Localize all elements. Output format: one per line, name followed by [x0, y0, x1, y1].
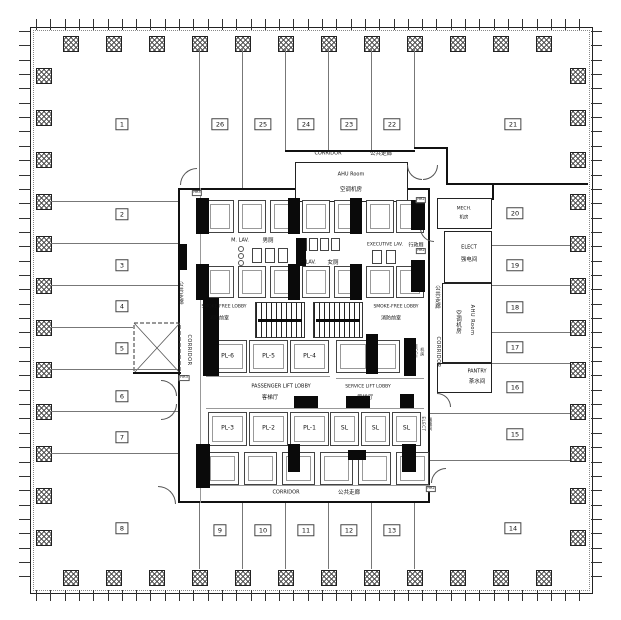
partition-line	[242, 150, 243, 188]
partition-line	[430, 413, 570, 414]
mullion-tick	[265, 590, 266, 601]
mullion-tick	[19, 361, 30, 362]
mullion-tick	[19, 232, 30, 233]
mullion-tick	[451, 19, 452, 30]
mullion-tick	[19, 548, 30, 549]
mullion-tick	[591, 232, 602, 233]
lav-stall	[320, 238, 329, 251]
shear-wall	[348, 450, 366, 460]
mullion-tick	[236, 590, 237, 601]
mullion-tick	[19, 519, 30, 520]
mullion-tick	[591, 289, 602, 290]
lift-cell: PL-5	[249, 340, 288, 373]
column	[450, 36, 466, 52]
mullion-tick	[494, 19, 495, 30]
mullion-tick	[591, 562, 602, 563]
lav-stall	[265, 248, 275, 263]
room-number-tag: 5	[115, 342, 128, 354]
pantry-label: PANTRY	[467, 369, 486, 375]
cell-inner	[340, 344, 366, 369]
ahu-right-label: AHU Room	[468, 305, 474, 336]
shaft-cell	[366, 266, 394, 298]
shear-wall	[402, 444, 416, 472]
column	[364, 36, 380, 52]
smoke-free-lobby-right-label-zh: 消防前室	[381, 316, 401, 322]
corridor-right-vertical-label: CORRIDOR	[434, 336, 440, 367]
mullion-tick	[251, 590, 252, 601]
mullion-tick	[19, 390, 30, 391]
lift-cell: PL-4	[290, 340, 329, 373]
mullion-tick	[19, 203, 30, 204]
cell-inner	[210, 270, 230, 294]
mullion-tick	[19, 74, 30, 75]
lift-label: PL-5	[250, 353, 287, 359]
shear-wall	[288, 264, 300, 300]
shaft-cell	[302, 266, 330, 298]
mullion-tick	[19, 562, 30, 563]
core-guide-line	[206, 408, 330, 409]
column	[536, 36, 552, 52]
column	[570, 404, 586, 420]
mullion-tick	[591, 390, 602, 391]
mullion-tick	[265, 19, 266, 30]
mens-lav-label-zh: 男厕	[262, 238, 273, 244]
urinal-fixture	[238, 260, 244, 266]
mullion-tick	[537, 19, 538, 30]
mullion-tick	[508, 19, 509, 30]
mullion-tick	[351, 590, 352, 601]
hose-reel-tag-4: HR3	[192, 190, 202, 196]
mullion-tick	[222, 19, 223, 30]
hose-reel-tag-1: HR2	[416, 197, 426, 203]
mullion-tick	[308, 19, 309, 30]
shear-wall	[288, 444, 300, 472]
mullion-tick	[591, 74, 602, 75]
shear-wall	[366, 334, 378, 374]
mullion-tick	[591, 375, 602, 376]
mullion-tick	[591, 160, 602, 161]
cell-inner	[242, 270, 262, 294]
mullion-tick	[465, 19, 466, 30]
mullion-tick	[591, 189, 602, 190]
cell-inner	[324, 456, 349, 481]
mullion-tick	[591, 146, 602, 147]
lav-stall	[386, 250, 396, 264]
urinal-fixture	[238, 253, 244, 259]
lav-stall	[372, 250, 382, 264]
mech-core-vertical-label: MECH.	[413, 344, 417, 359]
mullion-tick	[36, 590, 37, 601]
column	[106, 36, 122, 52]
mullion-tick	[379, 590, 380, 601]
stair-flight-left	[255, 302, 305, 338]
passenger-lift-lobby-label: PASSENGER LIFT LOBBY	[251, 384, 310, 390]
shaft-cell	[244, 452, 277, 485]
passenger-lift-lobby-label-zh: 客梯厅	[262, 395, 279, 401]
mullion-tick	[579, 19, 580, 30]
mullion-tick	[408, 590, 409, 601]
room-number-tag: 7	[115, 431, 128, 443]
ahu-top-label-zh: 空调机房	[340, 187, 362, 193]
partition-line	[371, 47, 372, 150]
mullion-tick	[494, 590, 495, 601]
shaft-cell	[238, 266, 266, 298]
mullion-tick	[451, 590, 452, 601]
mullion-tick	[591, 447, 602, 448]
shaft-cell	[238, 200, 266, 233]
room-number-tag: 21	[504, 118, 521, 130]
lift-label: PL-2	[250, 426, 287, 432]
cell-inner	[210, 456, 235, 481]
lav-stall	[309, 238, 318, 251]
column	[36, 446, 52, 462]
lift-cell: SL	[361, 412, 390, 446]
mullion-tick	[591, 261, 602, 262]
mullion-tick	[179, 19, 180, 30]
mullion-tick	[322, 19, 323, 30]
mullion-tick	[351, 19, 352, 30]
mullion-tick	[522, 590, 523, 601]
mullion-tick	[19, 490, 30, 491]
column	[321, 570, 337, 586]
core-guide-line	[330, 408, 424, 409]
shear-wall	[288, 198, 300, 234]
partition-line	[414, 503, 415, 569]
mullion-tick	[19, 218, 30, 219]
mullion-tick	[591, 45, 602, 46]
column	[278, 36, 294, 52]
mullion-tick	[19, 31, 30, 32]
mullion-tick	[19, 533, 30, 534]
room-number-tag: 12	[340, 524, 357, 536]
room-number-tag: 17	[506, 341, 523, 353]
mullion-tick	[193, 19, 194, 30]
lift-label: SL	[362, 426, 389, 432]
room-number-tag: 23	[340, 118, 357, 130]
demising-wall	[285, 150, 415, 152]
demising-wall	[446, 183, 588, 185]
demising-wall	[133, 372, 181, 374]
mullion-tick	[465, 590, 466, 601]
mullion-tick	[365, 19, 366, 30]
mullion-tick	[279, 19, 280, 30]
mullion-tick	[308, 590, 309, 601]
shear-wall	[203, 338, 219, 376]
mullion-tick	[136, 19, 137, 30]
mullion-tick	[19, 103, 30, 104]
mech-core-vertical-label-zh: 机房	[420, 348, 424, 357]
partition-line	[492, 363, 570, 364]
smoke-free-lobby-left-label: SMOKE-FREE LOBBY	[201, 306, 246, 311]
mullion-tick	[591, 117, 602, 118]
mullion-tick	[436, 19, 437, 30]
lift-label: PL-1	[291, 426, 328, 432]
mech-annex-label: MECH.	[457, 208, 472, 213]
mullion-tick	[591, 548, 602, 549]
column	[570, 236, 586, 252]
column	[36, 404, 52, 420]
column	[235, 570, 251, 586]
demising-wall	[414, 147, 448, 149]
mullion-tick	[19, 275, 30, 276]
column	[570, 530, 586, 546]
room-number-tag: 11	[297, 524, 314, 536]
partition-line	[47, 453, 178, 454]
column	[493, 36, 509, 52]
partition-line	[492, 285, 570, 286]
mullion-tick	[537, 590, 538, 601]
column	[407, 570, 423, 586]
cell-inner	[248, 456, 273, 481]
mullion-tick	[251, 19, 252, 30]
partition-line	[285, 503, 286, 569]
mullion-tick	[19, 576, 30, 577]
shear-wall	[178, 244, 187, 270]
column	[36, 530, 52, 546]
column	[36, 110, 52, 126]
mullion-tick	[479, 590, 480, 601]
mullion-tick	[19, 131, 30, 132]
mullion-tick	[208, 19, 209, 30]
column	[278, 570, 294, 586]
mullion-tick	[19, 433, 30, 434]
mullion-tick	[93, 19, 94, 30]
shear-wall	[350, 198, 362, 234]
partition-line	[47, 327, 133, 328]
partition-line	[328, 503, 329, 569]
mullion-tick	[193, 590, 194, 601]
cell-inner	[370, 204, 390, 229]
pantry-label-zh: 茶水间	[469, 379, 486, 385]
shear-wall	[196, 444, 210, 488]
mullion-tick	[591, 131, 602, 132]
hose-reel-tag-3: HR2	[426, 486, 436, 492]
mullion-tick	[591, 88, 602, 89]
mullion-tick	[591, 203, 602, 204]
column	[235, 36, 251, 52]
mullion-tick	[36, 19, 37, 30]
mullion-tick	[108, 590, 109, 601]
column	[106, 570, 122, 586]
mullion-tick	[50, 19, 51, 30]
core-guide-line	[336, 378, 424, 379]
smoke-free-lobby-right-label: SMOKE-FREE LOBBY	[373, 306, 418, 311]
lift-label: PL-4	[291, 353, 328, 359]
corridor-bottom-label-zh: 公共走廊	[338, 490, 360, 496]
column	[493, 570, 509, 586]
column	[570, 152, 586, 168]
column	[321, 36, 337, 52]
partition-line	[242, 47, 243, 150]
corridor-bottom-label: CORRIDOR	[272, 490, 299, 496]
mullion-tick	[422, 590, 423, 601]
core-guide-line	[196, 485, 430, 486]
partition-line	[47, 243, 178, 244]
room-number-tag: 25	[254, 118, 271, 130]
partition-line	[414, 47, 415, 148]
lift-label: SL	[331, 426, 358, 432]
shaft-cell	[206, 200, 234, 233]
shear-wall	[196, 198, 209, 234]
partition-line	[430, 460, 570, 461]
executive-lav-label: EXECUTIVE LAV.	[367, 244, 403, 249]
mullion-tick	[293, 590, 294, 601]
lift-cell: PL-3	[208, 412, 247, 446]
lift-cell: SL	[392, 412, 421, 446]
mullion-tick	[591, 347, 602, 348]
shaft-cell	[206, 452, 239, 485]
column	[149, 570, 165, 586]
column	[63, 36, 79, 52]
mullion-tick	[122, 590, 123, 601]
mullion-tick	[108, 19, 109, 30]
partition-line	[492, 332, 570, 333]
mullion-tick	[591, 533, 602, 534]
mullion-tick	[591, 60, 602, 61]
mullion-tick	[394, 19, 395, 30]
mullion-tick	[19, 318, 30, 319]
mullion-tick	[222, 590, 223, 601]
corridor-right-vertical-label-zh: 公共走廊	[434, 285, 440, 309]
cell-inner	[242, 204, 262, 229]
lift-cell: SL	[330, 412, 359, 446]
womens-lav-label: F. LAV.	[300, 260, 316, 266]
mullion-tick	[522, 19, 523, 30]
mullion-tick	[591, 433, 602, 434]
demising-wall	[492, 184, 494, 200]
mullion-tick	[19, 246, 30, 247]
mullion-tick	[150, 590, 151, 601]
mullion-tick	[591, 462, 602, 463]
mullion-tick	[19, 88, 30, 89]
mullion-tick	[591, 404, 602, 405]
partition-line	[47, 369, 178, 370]
shear-wall	[400, 394, 414, 408]
column	[36, 194, 52, 210]
shaft-cell	[366, 200, 394, 233]
column	[570, 68, 586, 84]
room-number-tag: 4	[115, 300, 128, 312]
mullion-tick	[591, 332, 602, 333]
column	[364, 570, 380, 586]
mullion-tick	[579, 590, 580, 601]
service-lift-lobby-label-zh: 货梯厅	[357, 395, 374, 401]
hose-reel-tag-2: HR2	[416, 248, 426, 254]
column	[570, 194, 586, 210]
mullion-tick	[19, 60, 30, 61]
mullion-tick	[591, 361, 602, 362]
cell-inner	[376, 344, 396, 369]
shaft-cell	[206, 266, 234, 298]
mullion-tick	[336, 19, 337, 30]
mullion-tick	[591, 275, 602, 276]
partition-line	[242, 503, 243, 569]
mullion-tick	[179, 590, 180, 601]
mullion-tick	[293, 19, 294, 30]
ahu-room-right	[442, 283, 492, 363]
column	[570, 320, 586, 336]
mullion-tick	[165, 19, 166, 30]
column	[570, 278, 586, 294]
mullion-tick	[436, 590, 437, 601]
mullion-tick	[208, 590, 209, 601]
column	[63, 570, 79, 586]
mullion-tick	[65, 19, 66, 30]
room-number-tag: 10	[254, 524, 271, 536]
mullion-tick	[365, 590, 366, 601]
room-number-tag: 26	[211, 118, 228, 130]
lift-cell: PL-1	[290, 412, 329, 446]
mens-lav-label: M. LAV.	[231, 238, 249, 244]
column	[36, 236, 52, 252]
mullion-tick	[19, 304, 30, 305]
room-number-tag: 13	[383, 524, 400, 536]
mullion-tick	[591, 175, 602, 176]
lift-label: PL-3	[209, 426, 246, 432]
partition-line	[199, 150, 200, 188]
mullion-tick	[591, 418, 602, 419]
mullion-tick	[19, 117, 30, 118]
room-number-tag: 16	[506, 381, 523, 393]
lav-stall	[252, 248, 262, 263]
column	[570, 488, 586, 504]
mullion-tick	[19, 45, 30, 46]
stair-flight-right	[313, 302, 363, 338]
service-lift-lobby-label: SERVICE LIFT LOBBY	[345, 386, 391, 391]
mullion-tick	[19, 447, 30, 448]
mullion-tick	[19, 375, 30, 376]
demising-wall	[446, 147, 448, 185]
column	[192, 36, 208, 52]
partition-line	[285, 47, 286, 150]
lav-stall	[278, 248, 288, 263]
fire-tag: FIR3	[179, 375, 190, 381]
room-number-tag: 24	[297, 118, 314, 130]
partition-line	[492, 245, 570, 246]
mullion-tick	[93, 590, 94, 601]
mullion-tick	[50, 590, 51, 601]
mullion-tick	[19, 261, 30, 262]
lav-stall	[331, 238, 340, 251]
column	[36, 278, 52, 294]
partition-line	[199, 503, 200, 569]
mullion-tick	[65, 590, 66, 601]
mullion-tick	[279, 590, 280, 601]
column	[570, 446, 586, 462]
urinal-fixture	[238, 246, 244, 252]
cell-inner	[210, 204, 230, 229]
cell-inner	[306, 270, 326, 294]
mullion-tick	[591, 476, 602, 477]
mullion-tick	[165, 590, 166, 601]
mullion-tick	[236, 19, 237, 30]
cell-inner	[306, 204, 326, 229]
mullion-tick	[591, 490, 602, 491]
mullion-tick	[591, 218, 602, 219]
mullion-tick	[479, 19, 480, 30]
room-number-tag: 20	[506, 207, 523, 219]
mullion-tick	[408, 19, 409, 30]
column	[36, 488, 52, 504]
partition-line	[199, 47, 200, 150]
column	[536, 570, 552, 586]
mullion-tick	[79, 19, 80, 30]
womens-lav-label-zh: 女厕	[327, 260, 338, 266]
mullion-tick	[19, 160, 30, 161]
corridor-left-vertical-label-zh: 公共走廊	[177, 281, 183, 305]
elect-core-vertical-label: ELECT	[421, 416, 425, 431]
column	[407, 36, 423, 52]
